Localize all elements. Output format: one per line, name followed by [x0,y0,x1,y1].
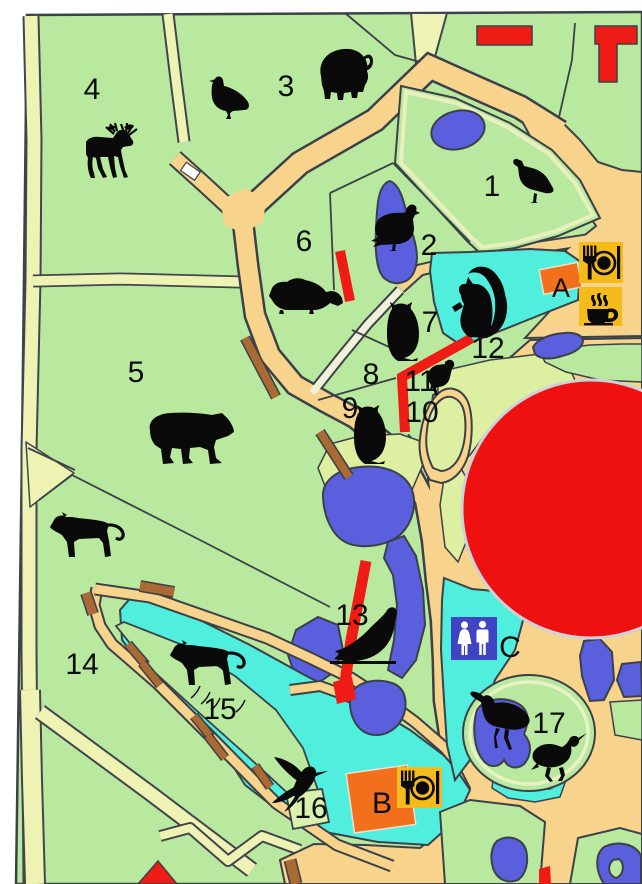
svg-text:6: 6 [296,225,313,258]
svg-text:17: 17 [532,707,565,740]
svg-text:3: 3 [278,70,295,103]
svg-text:11: 11 [404,365,435,398]
svg-text:7: 7 [422,306,439,339]
svg-text:C: C [499,631,521,664]
svg-text:2: 2 [421,229,438,262]
svg-text:16: 16 [294,792,327,825]
svg-text:A: A [552,273,570,303]
svg-text:10: 10 [405,396,438,429]
svg-text:5: 5 [128,356,145,389]
svg-text:12: 12 [471,332,504,365]
svg-text:9: 9 [342,392,359,425]
svg-text:14: 14 [65,648,98,681]
svg-text:13: 13 [335,599,368,632]
svg-text:1: 1 [484,170,501,203]
svg-text:4: 4 [84,73,101,106]
svg-text:B: B [372,787,392,820]
svg-text:15: 15 [203,693,236,726]
svg-text:8: 8 [363,358,380,391]
